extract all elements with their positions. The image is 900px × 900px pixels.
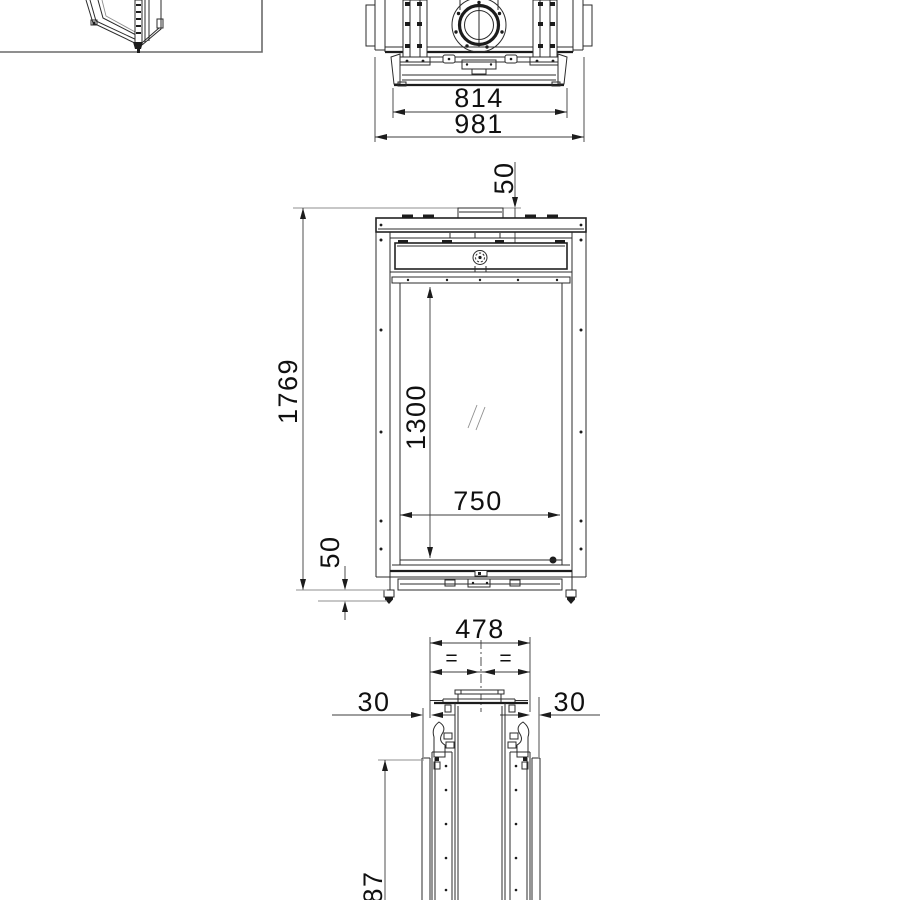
dim-50-top-label: 50	[489, 161, 519, 194]
dim-87-partial: 87	[358, 760, 424, 900]
dim-30-right-label: 30	[553, 687, 586, 717]
isometric-door-view	[86, 0, 163, 53]
mounting-rail-right	[530, 0, 560, 65]
foot-left	[384, 590, 394, 604]
top-view-dimensions: 814 981	[375, 57, 584, 142]
front-view: 50	[273, 161, 586, 620]
dim-1769-label: 1769	[273, 358, 303, 424]
dim-30-left-label: 30	[357, 687, 390, 717]
dim-981-label: 981	[454, 109, 504, 139]
drawing-sheet: 814 981 50	[0, 0, 900, 900]
dim-87-label: 87	[358, 870, 388, 900]
dim-478-label: 478	[455, 614, 505, 644]
dim-750-label: 750	[453, 486, 503, 516]
top-view: 814 981	[366, 0, 592, 142]
glass-reflection	[468, 405, 485, 430]
flue-stub-side	[455, 690, 504, 703]
base-assembly	[384, 571, 576, 605]
dim-50-bottom: 50	[296, 535, 387, 620]
dim-1300: 1300	[401, 287, 433, 558]
foot-right	[566, 590, 576, 604]
dim-750: 750	[400, 486, 560, 518]
convection-box	[395, 240, 567, 272]
hinge-bar	[133, 0, 143, 53]
dim-1300-label: 1300	[401, 384, 431, 450]
equal-symbol-left: =	[445, 647, 458, 670]
side-rails	[422, 752, 540, 900]
damper-knob	[473, 251, 487, 265]
dim-50-bottom-label: 50	[315, 535, 345, 568]
technical-drawing: 814 981 50	[0, 0, 900, 900]
side-panel	[142, 0, 163, 45]
dim-1769: 1769	[273, 208, 306, 590]
top-plate-side	[430, 699, 528, 712]
center-column	[455, 703, 505, 900]
flue-collar	[452, 0, 506, 52]
dim-30-right: 30	[500, 687, 600, 757]
side-view: 478 = = 30	[332, 614, 600, 900]
mounting-rail-left	[400, 0, 430, 65]
sheet-frame-corner	[0, 0, 262, 52]
equal-symbol-right: =	[499, 647, 512, 670]
